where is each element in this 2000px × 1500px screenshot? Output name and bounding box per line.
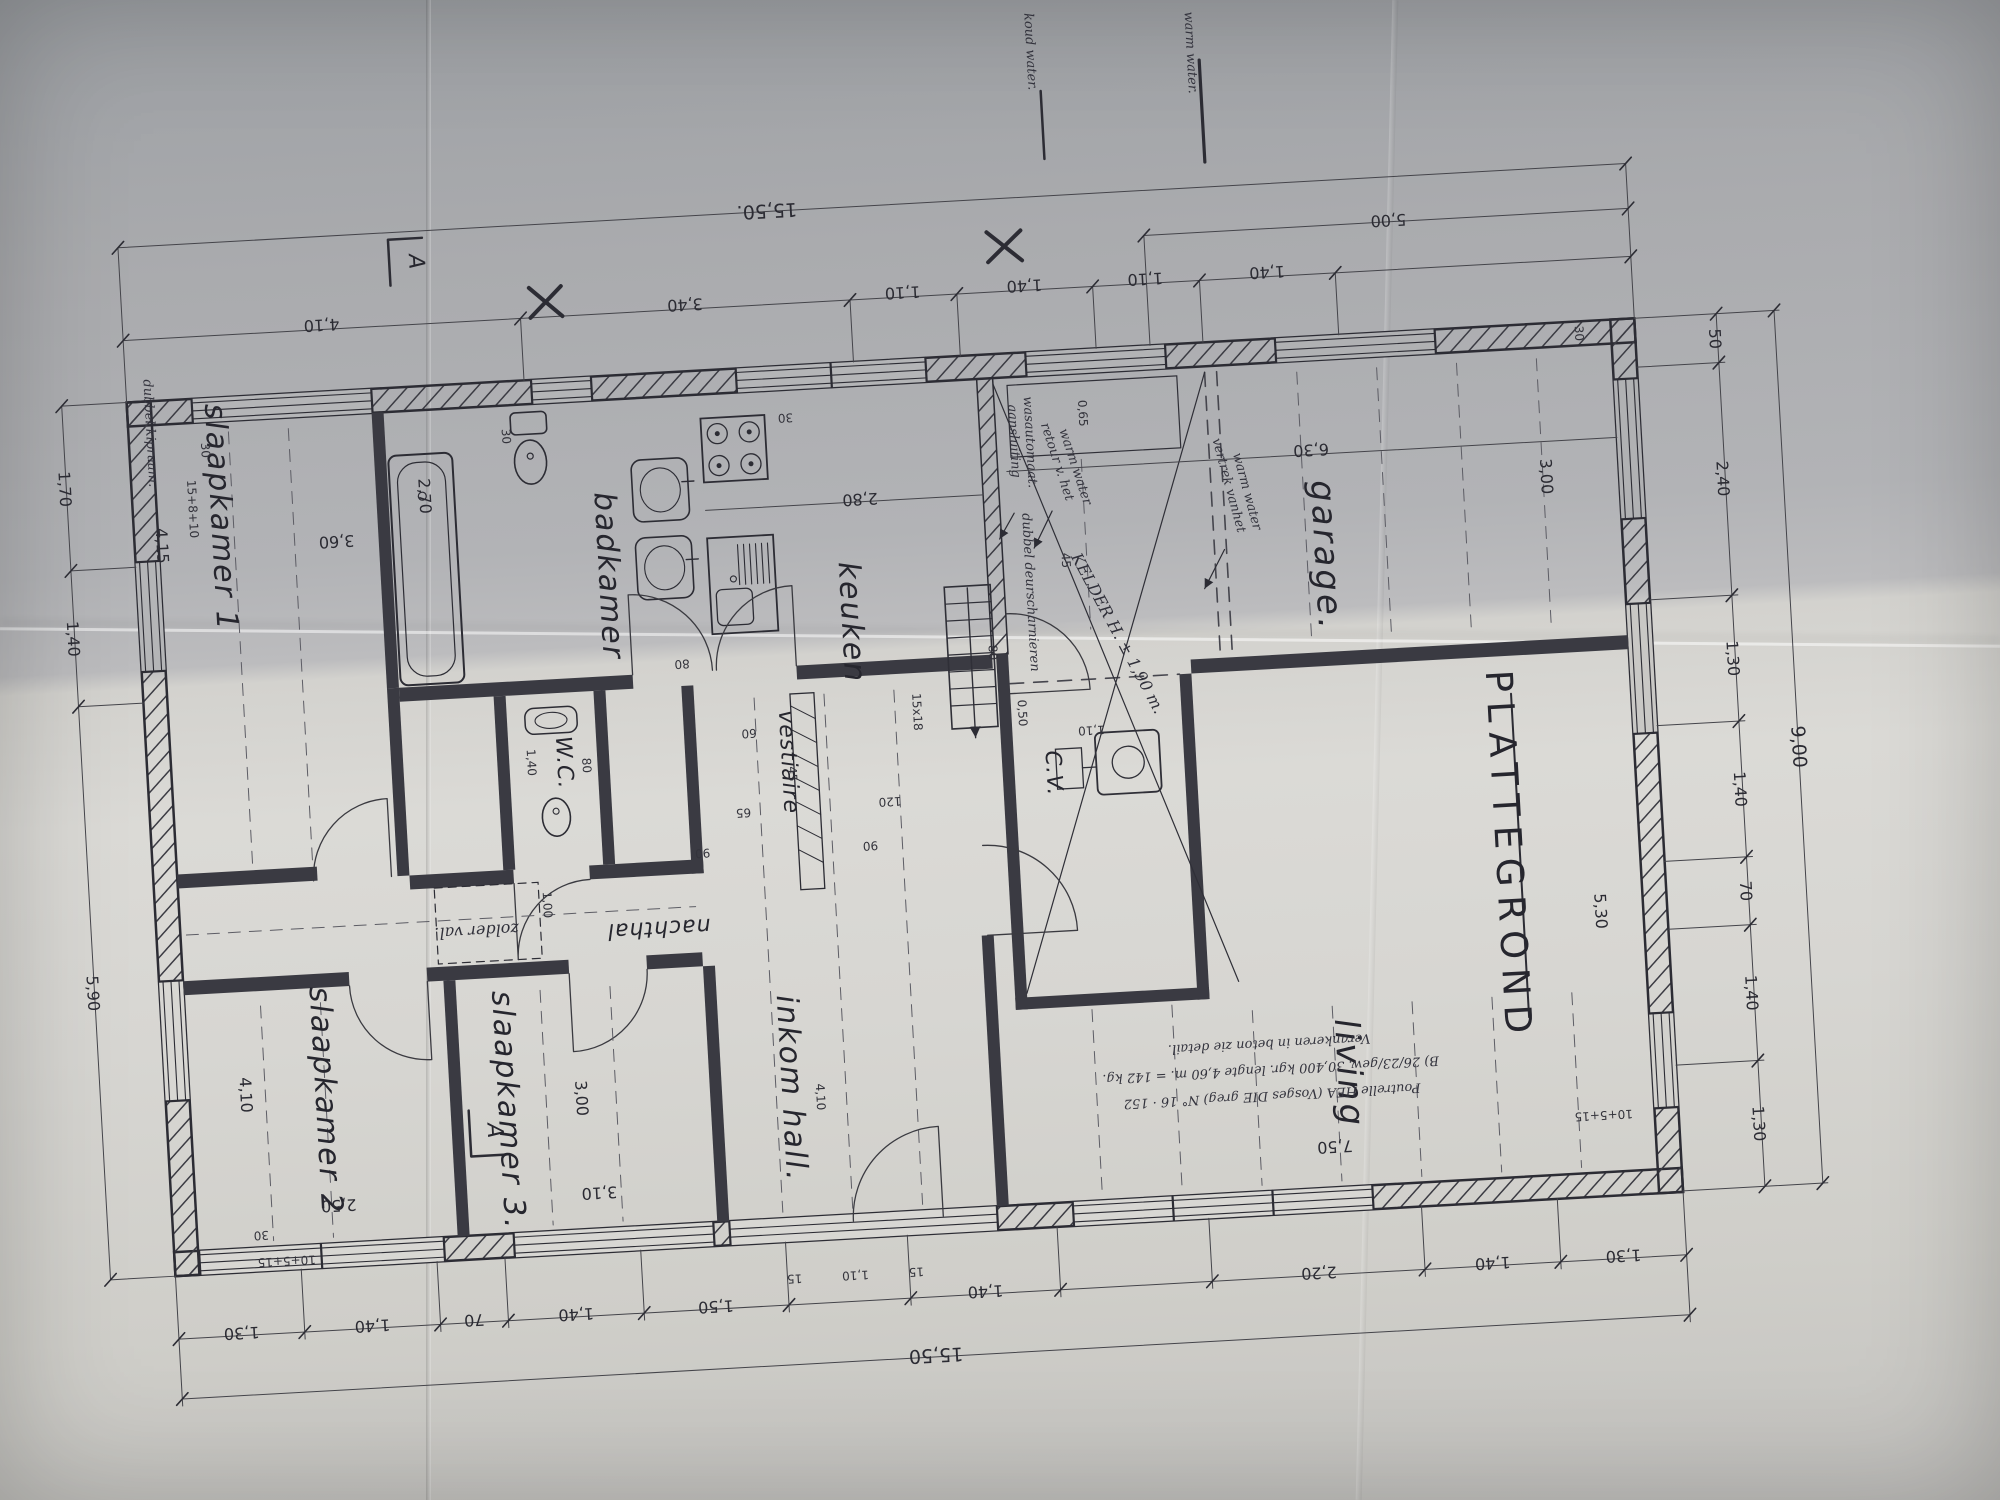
- room-label-badkamer: badkamer: [586, 491, 630, 661]
- toilet-badkamer: [510, 411, 550, 485]
- dim-30b: 30: [499, 428, 514, 444]
- dim-right-3: 1,40: [1730, 771, 1751, 808]
- dim-bottom-3: 1,40: [558, 1304, 595, 1325]
- dim-right-2: 1,30: [1722, 640, 1743, 677]
- legend-line-cold: [1041, 91, 1045, 159]
- window-berging: [1025, 344, 1166, 376]
- window-living: [1073, 1185, 1374, 1226]
- dim-slk2-w: 2,50: [320, 1195, 357, 1216]
- dim-top-total: 15,50.: [736, 198, 798, 223]
- dim-top-5b: 1,40: [1249, 262, 1286, 283]
- dim-living-w: 7,50: [1317, 1136, 1354, 1157]
- room-label-wc: W.C.: [550, 735, 578, 790]
- double-washbasin: [631, 457, 701, 600]
- dim-top-0: 4,10: [303, 315, 340, 336]
- page-title: PLATTEGROND: [1477, 669, 1541, 1044]
- room-label-zolder-val: zolder val.: [434, 919, 520, 943]
- dim-slk1-w: 3,60: [318, 531, 355, 552]
- dim-slk3-h: 3,00: [571, 1080, 592, 1117]
- dim-tub: 2,70: [414, 478, 435, 515]
- dim-bottom-7: 1,40: [1474, 1253, 1511, 1274]
- room-label-garage: garage.: [1302, 479, 1350, 633]
- windows: [127, 318, 1683, 1276]
- hot-supply-arrow: [1203, 549, 1227, 588]
- dim-left-2: 5,90: [83, 975, 104, 1012]
- interior-walls: [152, 344, 1658, 1251]
- dim-bottom-4: 1,50: [698, 1296, 735, 1317]
- dim-30a: 30: [198, 442, 213, 458]
- dim-bottom-s2: 15: [908, 1264, 924, 1279]
- dim-right-inner-0: 30: [1572, 325, 1587, 341]
- dim-bottom-1: 1,40: [354, 1315, 391, 1336]
- dim-bottom-2: 70: [464, 1310, 485, 1330]
- dim-wc-w: 80: [579, 757, 594, 773]
- misc-marks: [380, 45, 1533, 1159]
- dim-left-1: 1,40: [63, 621, 84, 658]
- section-mark-top: A: [403, 251, 429, 270]
- window-right-mid: [1626, 603, 1657, 734]
- dim-right-1: 2,40: [1712, 460, 1733, 497]
- dim-120: 120: [878, 794, 902, 809]
- room-label-nachthal: nachthal: [606, 913, 711, 944]
- dim-30c: 30: [777, 410, 793, 425]
- dim-45a: 45: [785, 766, 800, 782]
- dim-top-5: 5,00: [1370, 210, 1407, 231]
- dim-bottom-s0: 15: [787, 1271, 803, 1286]
- note-hinge: dubbel deurscharnieren: [1018, 513, 1042, 672]
- dim-90b: 90: [862, 838, 878, 853]
- dim-top-1: 3,40: [667, 294, 704, 315]
- dim-100: 1,00: [540, 891, 555, 918]
- dim-right-6: 1,30: [1748, 1105, 1769, 1142]
- dim-slk3-w: 3,10: [581, 1182, 618, 1203]
- room-label-slaapkamer2: slaapkamer 2: [302, 986, 350, 1216]
- dim-30d: 30: [253, 1228, 269, 1243]
- cv-boiler: [1055, 729, 1162, 797]
- wallnote-a: 15+8+10: [184, 480, 201, 539]
- dim-wc-h: 1,40: [524, 749, 539, 776]
- garage-door-right: [1614, 378, 1646, 519]
- dim-right-total: 9,00: [1786, 725, 1810, 768]
- x-mark-right: [986, 230, 1022, 262]
- dim-bottom-8: 1,30: [1605, 1245, 1642, 1266]
- dim-left-0: 1,70: [54, 471, 75, 508]
- dim-90a: 90: [695, 846, 711, 861]
- stove: [700, 415, 767, 482]
- dim-right-0: 50: [1705, 328, 1725, 349]
- dim-slk1-h: 4,15: [152, 527, 173, 564]
- legend-line-warm: [1199, 60, 1205, 162]
- dim-top-2: 1,10: [884, 282, 921, 303]
- dim-bottom-0: 1,30: [223, 1323, 260, 1344]
- dim-80a: 80: [674, 657, 690, 672]
- dim-bottom-s1: 1,10: [842, 1267, 869, 1282]
- note-beam-2: B) 26/23/gew. 30,400 kgr. lengte 4,60 m.…: [1102, 1052, 1440, 1086]
- dim-110: 1,10: [1078, 722, 1105, 737]
- dim-60: 60: [741, 726, 757, 741]
- section-mark-bottom: A: [481, 1120, 507, 1139]
- window-badkamer: [531, 377, 592, 404]
- dim-keuken-w: 2,80: [842, 489, 879, 510]
- room-label-vestiaire: vestiaire: [773, 710, 804, 815]
- x-mark-left: [529, 286, 563, 318]
- legend-warm-label: warm water.: [1180, 11, 1200, 94]
- dim-inkom-w: 4,10: [813, 1083, 828, 1110]
- dim-slk2-h: 4,10: [235, 1077, 256, 1114]
- note-wash-1: aansluiting: [1004, 404, 1023, 478]
- dim-bottom-5: 1,40: [967, 1281, 1004, 1302]
- room-label-slaapkamer1: slaapkamer 1: [197, 403, 245, 633]
- dim-bottom-total: 15,50: [908, 1342, 964, 1367]
- room-label-cv: C.V.: [1039, 750, 1067, 797]
- wallnote-c: 10+5+15: [1574, 1107, 1633, 1124]
- room-label-keuken: keuken: [831, 561, 873, 684]
- dim-15x18: 15x18: [909, 693, 925, 731]
- room-label-inkom-hall: inkom hall.: [769, 994, 814, 1183]
- legend-cold-label: koud water.: [1020, 13, 1039, 91]
- dim-050: 0,50: [1015, 699, 1030, 726]
- dim-80b: 80: [986, 645, 1001, 661]
- dim-65: 65: [735, 805, 751, 820]
- dim-top-4: 1,10: [1127, 269, 1164, 290]
- note-kelder: KELDER H. ± 1,90 m.: [1067, 549, 1169, 717]
- dim-right-4: 70: [1736, 880, 1756, 901]
- outer-walls: [127, 318, 1683, 1276]
- note-beam-1: Poutrelle HEA (Vosges DIE greg) N° 16 · …: [1123, 1079, 1422, 1111]
- dim-right-5: 1,40: [1741, 974, 1762, 1011]
- dim-right-inner-2: 5,30: [1590, 893, 1611, 930]
- kitchen-sink: [707, 535, 778, 635]
- dim-top-3: 1,40: [1006, 275, 1043, 296]
- dim-garage-w: 6,30: [1293, 440, 1330, 461]
- dim-right-inner-1: 3,00: [1536, 458, 1557, 495]
- photo-of-floorplan: slaapkamer 1 slaapkamer 2 slaapkamer 3. …: [0, 0, 2000, 1500]
- room-label-slaapkamer3: slaapkamer 3.: [484, 990, 532, 1231]
- floorplan-drawing: slaapkamer 1 slaapkamer 2 slaapkamer 3. …: [0, 0, 2000, 1500]
- dim-bottom-6: 2,20: [1301, 1262, 1338, 1283]
- entrance-glazing: [729, 1206, 998, 1245]
- window-garage: [1275, 329, 1436, 362]
- window-keuken: [736, 358, 927, 393]
- dim-065: 0,65: [1075, 399, 1090, 426]
